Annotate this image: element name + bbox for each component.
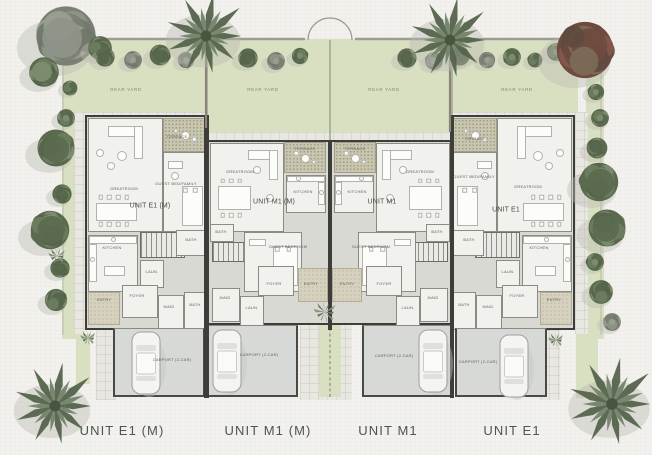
room-label: GUEST BEDROOM xyxy=(269,245,307,249)
room-label: MAID xyxy=(220,296,231,300)
room-label: LAUN. xyxy=(146,270,159,274)
room-label: FOYER xyxy=(130,294,145,298)
unit-name-label: UNIT E1 xyxy=(492,205,520,213)
car-icon xyxy=(132,332,166,397)
room-label: BATH xyxy=(215,230,226,234)
room-label: ENTRY xyxy=(97,298,112,302)
room-label: BATH xyxy=(431,230,442,234)
room-label: KITCHEN xyxy=(293,190,312,194)
site-plan-canvas: UNIT E1 (M) UNIT M1 (M) UNIT M1 UNIT E1 … xyxy=(0,0,652,455)
room-label: GUEST BEDROOM xyxy=(352,245,390,249)
room-label: GREATROOM xyxy=(226,170,254,174)
room-label: ENTRY xyxy=(304,282,319,286)
cars-layer xyxy=(0,0,652,455)
room-label: CARPORT (2-CAR) xyxy=(375,354,414,358)
room-label: CARPORT (2-CAR) xyxy=(153,358,192,362)
room-label: BATH xyxy=(185,238,196,242)
unit-name-label: UNIT M1 xyxy=(368,197,397,205)
room-label: GUEST BED/FAMILY xyxy=(155,182,197,186)
room-label: MAID xyxy=(428,296,439,300)
car-icon xyxy=(419,330,453,395)
room-label: FOYER xyxy=(267,282,282,286)
room-label: ENTRY xyxy=(340,282,355,286)
room-label: KITCHEN xyxy=(347,190,366,194)
unit-name-label: UNIT M1 (M) xyxy=(253,197,295,205)
room-label: KITCHEN xyxy=(102,246,121,250)
room-label: GREATROOM xyxy=(110,187,138,191)
room-label: KITCHEN xyxy=(529,246,548,250)
room-label: LAUN. xyxy=(502,270,515,274)
room-label: BATH xyxy=(463,238,474,242)
room-label: CARPORT (2-CAR) xyxy=(459,360,498,364)
room-label: LAUN. xyxy=(402,306,415,310)
room-label: MAID xyxy=(164,305,175,309)
room-label: GUEST BED/FAMILY xyxy=(453,175,495,179)
unit-name-label: UNIT E1 (M) xyxy=(130,201,171,209)
room-label: TERRACE xyxy=(465,137,486,141)
car-icon xyxy=(213,330,247,395)
room-label: TERRACE xyxy=(345,147,366,151)
room-label: MAID xyxy=(483,305,494,309)
room-label: LAUN. xyxy=(246,306,259,310)
car-icon xyxy=(500,335,534,400)
room-label: BATH xyxy=(458,303,469,307)
room-label: GREATROOM xyxy=(514,185,542,189)
room-label: TERRACE xyxy=(167,135,188,139)
room-label: TERRACE xyxy=(295,147,316,151)
room-label: GREATROOM xyxy=(406,170,434,174)
room-label: ENTRY xyxy=(547,298,562,302)
room-label: CARPORT (2-CAR) xyxy=(240,353,279,357)
room-label: BATH xyxy=(189,303,200,307)
room-label: FOYER xyxy=(377,282,392,286)
room-label: FOYER xyxy=(510,294,525,298)
